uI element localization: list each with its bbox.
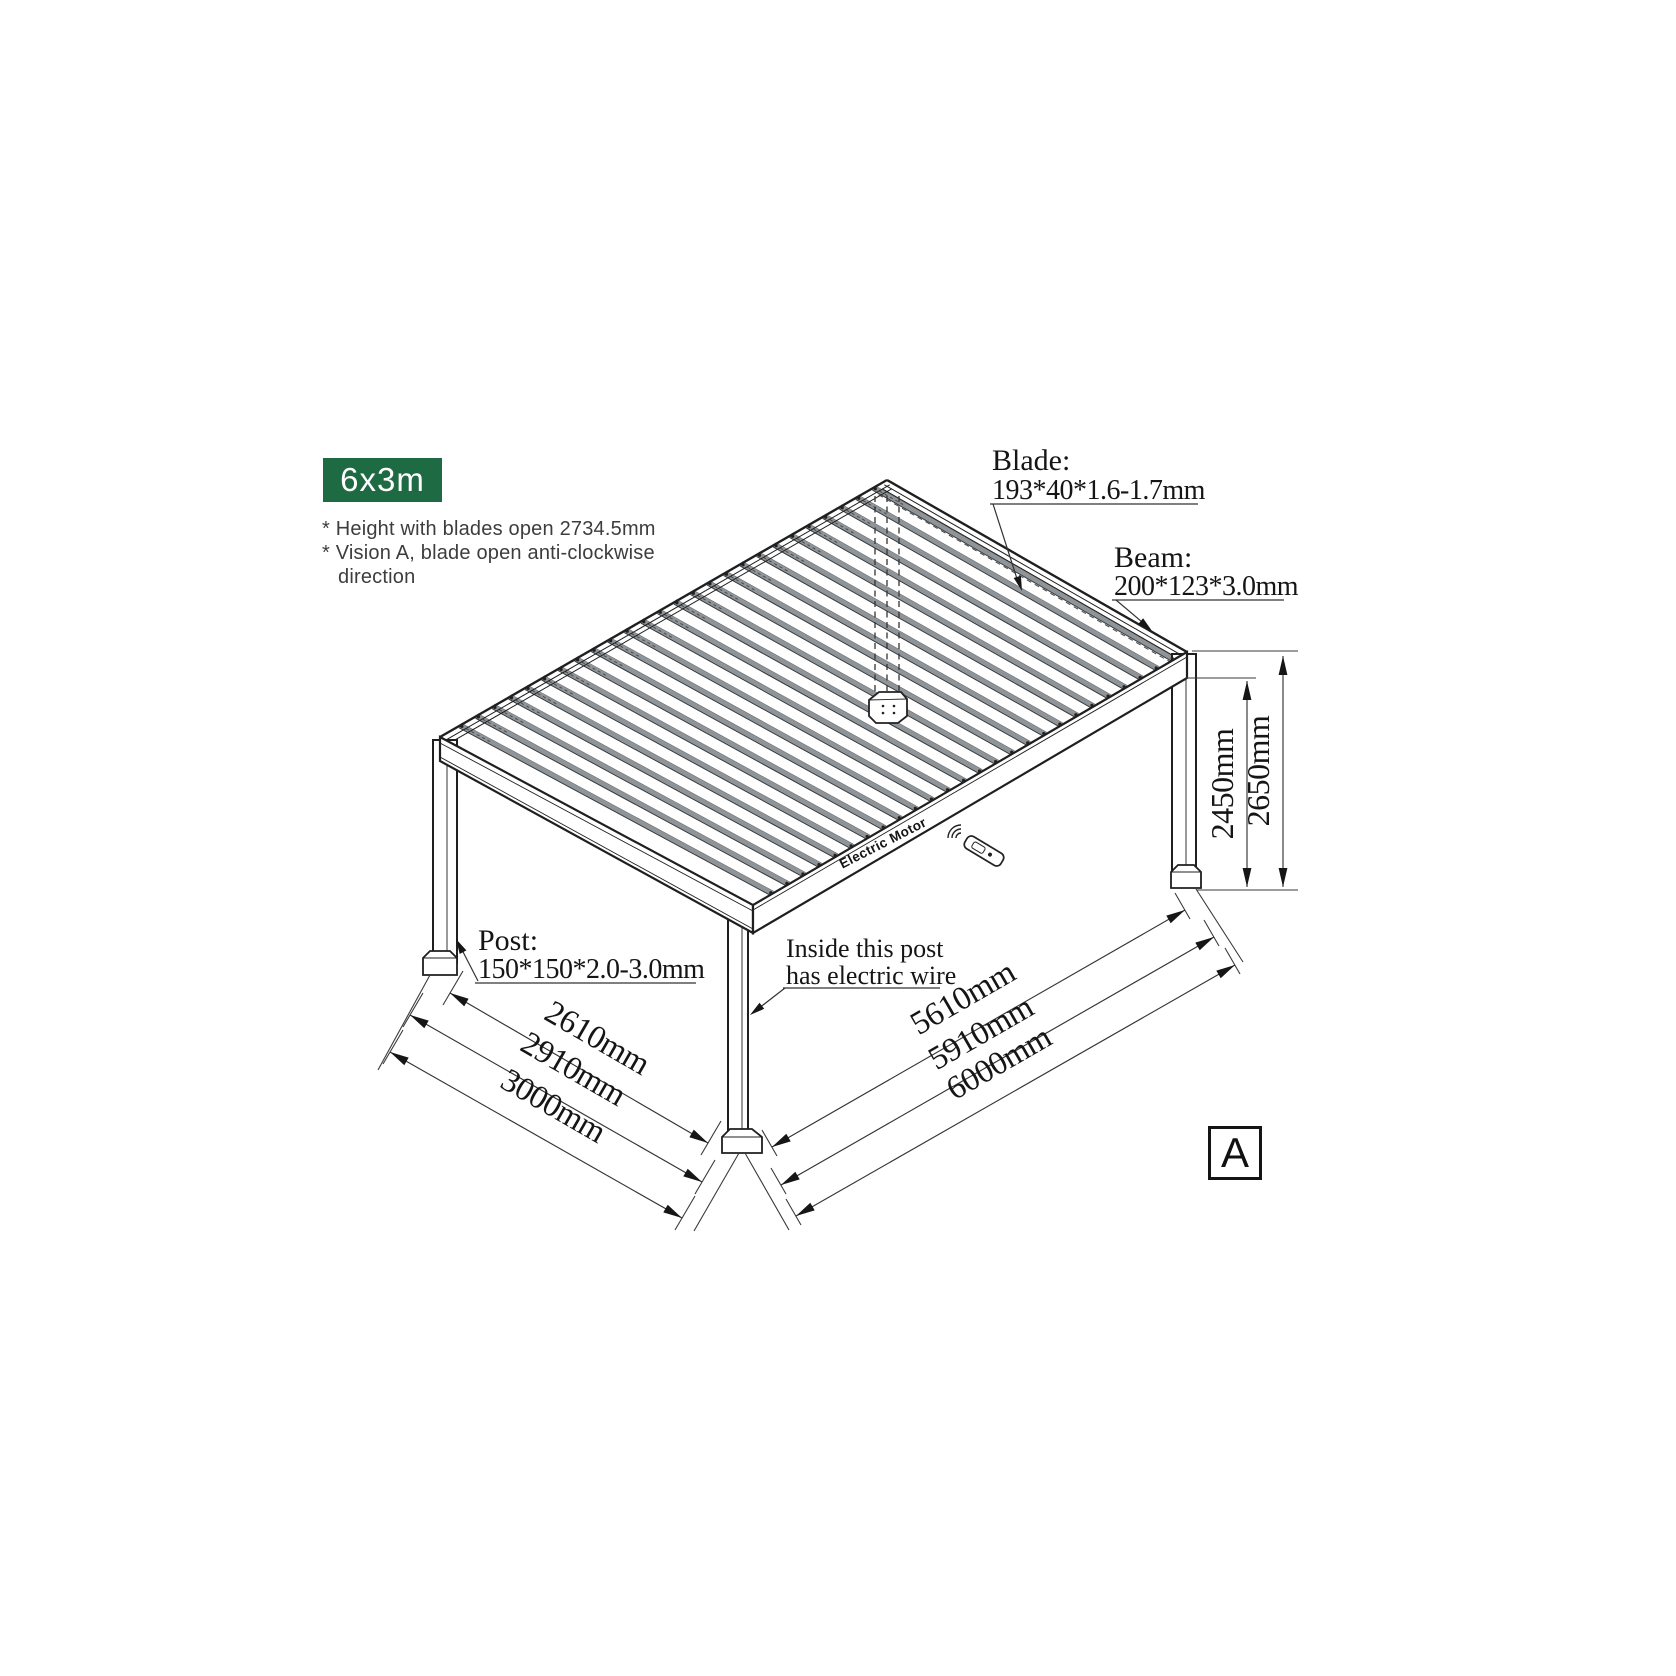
blade-callout-title: Blade: [992,444,1070,477]
view-marker-a: A [1208,1126,1262,1180]
post-foot-right [1171,865,1201,888]
motor-mount-hole [893,712,896,715]
extension-line [694,1153,739,1231]
dim-line-3000-arrow [390,1052,409,1065]
louver-end-dot [1090,704,1093,707]
post [728,908,748,1140]
dim-height-to-beam: 2450mm [1204,728,1240,839]
louver-end-dot [769,891,772,894]
extension-stub [771,1168,786,1194]
dim-line-6000-arrow [796,1203,815,1216]
dim-line-6000-arrow [1216,965,1235,978]
dim-line-2910-arrow [410,1015,429,1028]
dim-line-2910-arrow [683,1169,702,1182]
note-vision-a: * Vision A, blade open anti-clockwise [322,541,656,565]
pergola-diagram: Blade: 193*40*1.6-1.7mm Beam: 200*123*3.… [0,0,1676,1676]
dim-line-2650-arrow [1279,656,1288,675]
wire-callout-line2: has electric wire [786,961,956,990]
wire-callout-line1: Inside this post [786,934,944,963]
louver-end-dot [914,807,917,810]
louver-end-dot [1122,685,1125,688]
louver-end-dot [817,863,820,866]
extension-stub [701,1121,721,1155]
extension-stub [762,1130,777,1156]
post [433,740,457,963]
motor-mount-hole [882,705,885,708]
blade-callout-value: 193*40*1.6-1.7mm [992,475,1206,506]
motor-mount-box [869,692,907,723]
louver-end-dot [1171,657,1174,660]
extension-stub [695,1160,715,1194]
louver-end-dot [1074,713,1077,716]
beam-callout-title: Beam: [1114,541,1192,574]
extension-stub [675,1196,695,1230]
extension-stub [786,1199,801,1225]
louver-end-dot [849,844,852,847]
louver-end-dot [1026,741,1029,744]
extension-line [1196,889,1243,962]
louver-end-dot [1106,694,1109,697]
dim-line-5610-arrow [772,1134,791,1147]
remote-control-icon [962,834,1005,868]
louver-end-dot [1010,751,1013,754]
louver-end-dot [1042,732,1045,735]
louver-end-dot [833,854,836,857]
dim-line-2450-arrow [1243,868,1252,887]
louver-end-dot [1155,666,1158,669]
louver-end-dot [978,769,981,772]
louver-end-dot [930,797,933,800]
dim-line-5910-arrow [781,1172,800,1185]
dim-line-2450-arrow [1243,681,1252,700]
signal-waves-icon [956,833,961,838]
beam-callout-value: 200*123*3.0mm [1114,571,1299,602]
extension-line [745,1153,789,1230]
louver-end-dot [994,760,997,763]
pergola-spec-sheet: Blade: 193*40*1.6-1.7mm Beam: 200*123*3.… [0,0,1676,1676]
dim-line-5610-arrow [1166,910,1185,923]
motor-mount-hole [882,712,885,715]
louver-end-dot [962,779,965,782]
dim-line-2610-arrow [450,993,469,1006]
louver-end-dot [946,788,949,791]
size-badge: 6x3m [323,458,442,502]
louver-end-dot [801,872,804,875]
note-height-open: * Height with blades open 2734.5mm [322,517,656,541]
spec-notes: * Height with blades open 2734.5mm * Vis… [322,517,656,589]
louver-end-dot [1139,676,1142,679]
motor-mount-hole [893,705,896,708]
louver-end-dot [882,826,885,829]
louver-end-dot [866,835,869,838]
louver-end-dot [898,816,901,819]
wire-leader-arrow [750,1003,764,1015]
post [1172,654,1196,884]
dim-line-2610-arrow [689,1130,708,1143]
note-direction: direction [322,565,656,589]
dim-line-2650-arrow [1279,868,1288,887]
dim-line-3000-arrow [663,1205,682,1218]
louver-end-dot [1058,723,1061,726]
dim-line-5910-arrow [1195,937,1214,950]
dim-height-total: 2650mm [1240,715,1276,826]
post-callout-title: Post: [478,924,538,957]
post-foot-left [423,951,457,975]
louver-end-dot [785,882,788,885]
post-callout-value: 150*150*2.0-3.0mm [478,954,705,985]
post-foot-front [722,1129,762,1153]
